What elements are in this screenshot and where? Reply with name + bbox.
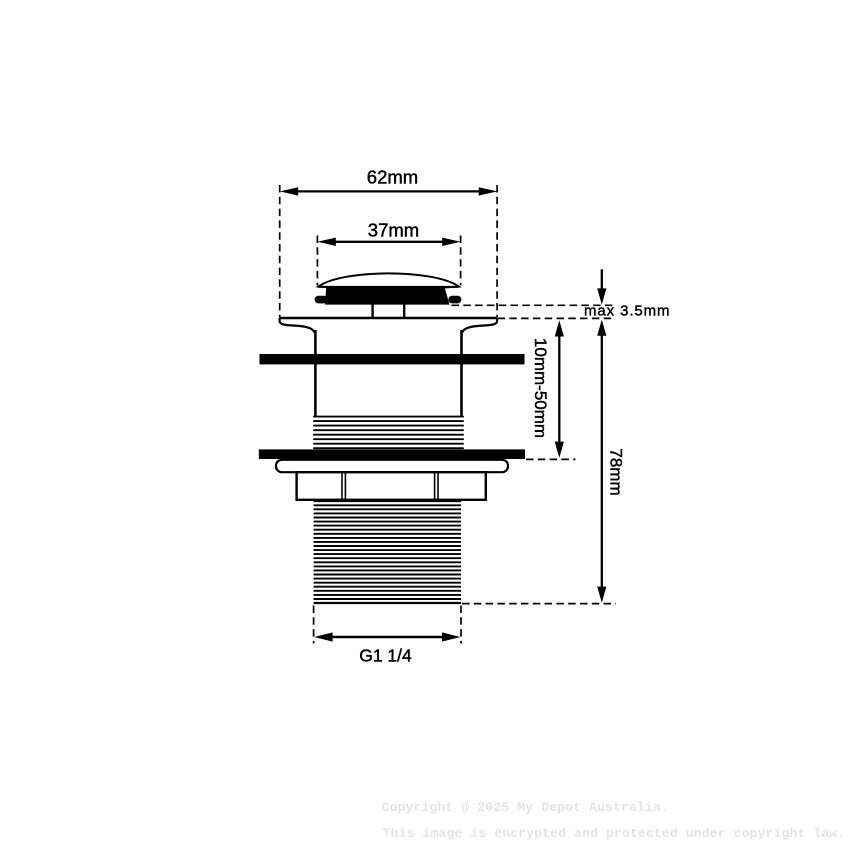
svg-text:10mm-50mm: 10mm-50mm xyxy=(531,338,550,438)
svg-text:max 3.5mm: max 3.5mm xyxy=(584,303,670,320)
svg-text:Copyright @ 2025 My Depot Aust: Copyright @ 2025 My Depot Australia. xyxy=(382,800,669,815)
svg-text:78mm: 78mm xyxy=(607,448,626,495)
svg-text:62mm: 62mm xyxy=(367,167,418,188)
svg-text:This image is encrypted and pr: This image is encrypted and protected un… xyxy=(383,826,846,841)
svg-text:37mm: 37mm xyxy=(368,220,419,241)
svg-text:G1 1/4: G1 1/4 xyxy=(359,645,412,665)
